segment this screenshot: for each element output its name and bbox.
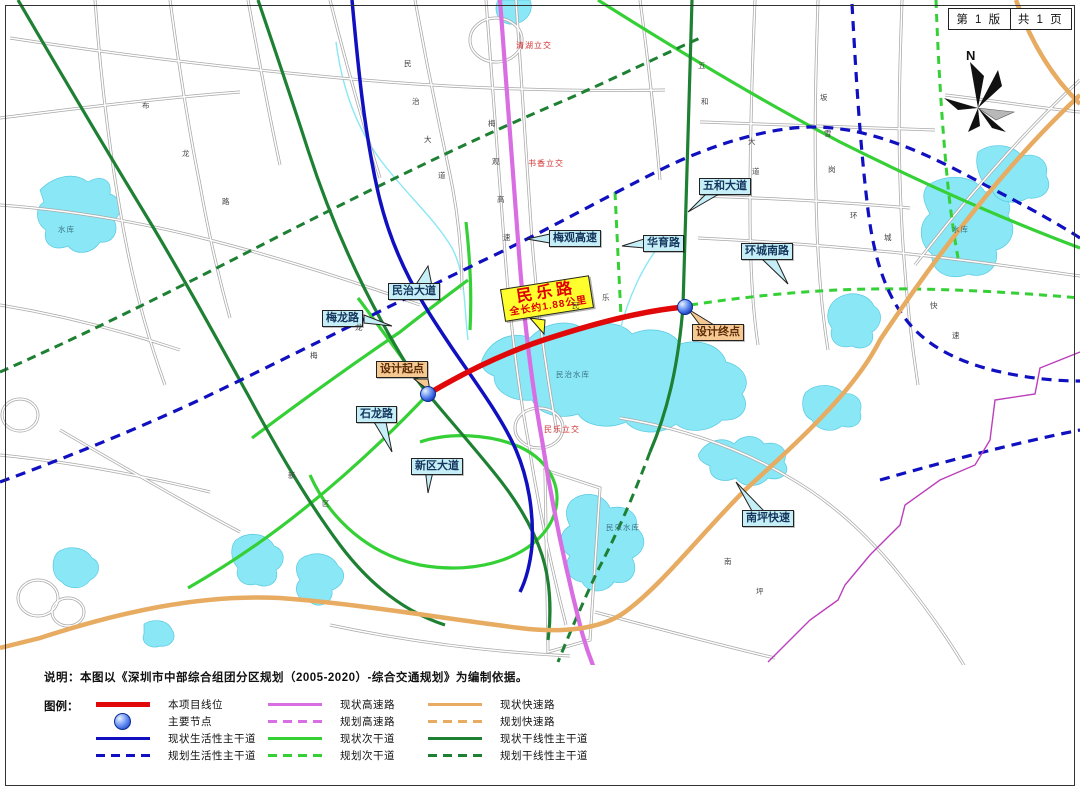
reservoir-label-1: 民治水库	[556, 369, 590, 380]
road-char: 路	[222, 196, 230, 207]
road-char: 环	[850, 210, 858, 221]
legend-label: 本项目线位	[168, 697, 223, 712]
edition-cell: 第 1 版	[949, 9, 1010, 29]
road-label-minzhi-dadao: 民治大道	[388, 283, 440, 300]
road-char: 道	[752, 166, 760, 177]
legend-item-project-line: 本项目线位	[96, 698, 256, 711]
title-block: 第 1 版 共 1 页	[948, 8, 1072, 30]
road-label-shilong-lu: 石龙路	[356, 406, 397, 423]
legend-swatch-node-icon	[96, 713, 158, 730]
reservoir-label-2: 民乐水库	[606, 522, 640, 533]
road-char: 坪	[756, 586, 764, 597]
north-label: N	[966, 48, 975, 63]
legend-label: 规划次干道	[340, 748, 395, 763]
legend-item-secondary-planned: 规划次干道	[268, 749, 395, 762]
road-map-canvas	[0, 0, 1080, 665]
legend-item-fast-existing: 现状快速路	[428, 698, 588, 711]
road-char: 雪	[824, 128, 832, 139]
road-char: 梅	[488, 118, 496, 129]
pages-cell: 共 1 页	[1010, 9, 1072, 29]
legend-swatch-living-existing	[96, 737, 158, 740]
legend-label: 现状高速路	[340, 697, 395, 712]
legend-item-living-planned: 规划生活性主干道	[96, 749, 256, 762]
road-char: 龙	[355, 322, 363, 333]
road-char: 坂	[820, 92, 828, 103]
road-char: 观	[492, 156, 500, 167]
legend-swatch-secondary-existing	[268, 737, 330, 740]
road-label-nanping-kuaisu: 南坪快速	[742, 510, 794, 527]
reservoir-label-4: 水库	[952, 224, 969, 235]
source-note: 说明：本图以《深圳市中部综合组团分区规划（2005-2020）-综合交通规划》为…	[44, 669, 528, 685]
legend-swatch-highway-planned	[268, 720, 330, 723]
road-char: 龙	[182, 148, 190, 159]
legend-item-trunk-existing: 现状干线性主干道	[428, 732, 588, 745]
road-char: 高	[497, 194, 505, 205]
road-label-huancheng-nanlu: 环城南路	[741, 243, 793, 260]
road-char: 民	[572, 300, 580, 311]
road-char: 道	[438, 170, 446, 181]
road-char: 速	[503, 232, 511, 243]
legend-swatch-trunk-existing	[428, 737, 490, 740]
legend-label: 规划快速路	[500, 714, 555, 729]
road-label-meiguan-gaosu: 梅观高速	[549, 230, 601, 247]
legend-label: 规划高速路	[340, 714, 395, 729]
road-char: 城	[884, 232, 892, 243]
road-char: 乐	[602, 292, 610, 303]
legend-column-2: 现状高速路 规划高速路 现状次干道 规划次干道	[268, 698, 395, 762]
road-char: 布	[142, 100, 150, 111]
legend-label: 现状快速路	[500, 697, 555, 712]
legend-label: 规划生活性主干道	[168, 748, 256, 763]
legend-swatch-fast-planned	[428, 720, 490, 723]
node-design-end	[678, 300, 693, 315]
legend-title: 图例：	[44, 698, 79, 714]
road-char: 快	[930, 300, 938, 311]
design-start-label: 设计起点	[376, 361, 428, 378]
road-label-wuhe-dadao: 五和大道	[699, 178, 751, 195]
legend-item-fast-planned: 规划快速路	[428, 715, 588, 728]
legend-swatch-living-planned	[96, 754, 158, 757]
road-char: 岗	[828, 164, 836, 175]
legend-swatch-project-line	[96, 702, 158, 707]
legend-item-highway-planned: 规划高速路	[268, 715, 395, 728]
road-char: 速	[952, 330, 960, 341]
interchange-label-2: 书香立交	[528, 158, 564, 169]
road-char: 新	[288, 470, 296, 481]
road-char: 大	[424, 134, 432, 145]
road-char: 五	[698, 60, 706, 71]
interchange-label-1: 清湖立交	[516, 40, 552, 51]
road-char: 南	[724, 556, 732, 567]
road-label-huayu-lu: 华育路	[643, 235, 684, 252]
road-char: 民	[404, 58, 412, 69]
road-char: 区	[322, 498, 330, 509]
legend-label: 主要节点	[168, 714, 212, 729]
road-label-xinqu-dadao: 新区大道	[411, 458, 463, 475]
road-char: 大	[748, 136, 756, 147]
legend-item-secondary-existing: 现状次干道	[268, 732, 395, 745]
road-char: 治	[412, 96, 420, 107]
legend-swatch-trunk-planned	[428, 754, 490, 757]
legend-item-major-node: 主要节点	[96, 715, 256, 728]
legend-label: 规划干线性主干道	[500, 748, 588, 763]
legend-item-living-existing: 现状生活性主干道	[96, 732, 256, 745]
legend-swatch-highway-existing	[268, 703, 330, 706]
legend-label: 现状干线性主干道	[500, 731, 588, 746]
design-end-label: 设计终点	[692, 324, 744, 341]
road-char: 梅	[310, 350, 318, 361]
legend-column-3: 现状快速路 规划快速路 现状干线性主干道 规划干线性主干道	[428, 698, 588, 762]
legend-column-1: 本项目线位 主要节点 现状生活性主干道 规划生活性主干道	[96, 698, 256, 762]
legend-swatch-fast-existing	[428, 703, 490, 706]
interchange-label-3: 民乐立交	[544, 424, 580, 435]
planning-map-page: 民治大道 梅龙路 梅观高速 华育路 环城南路 五和大道 石龙路 新区大道 南坪快…	[0, 0, 1080, 791]
legend-label: 现状生活性主干道	[168, 731, 256, 746]
legend-swatch-secondary-planned	[268, 754, 330, 757]
node-design-start	[421, 387, 436, 402]
reservoir-label-3: 水库	[58, 224, 75, 235]
road-char: 和	[701, 96, 709, 107]
legend-label: 现状次干道	[340, 731, 395, 746]
legend-item-trunk-planned: 规划干线性主干道	[428, 749, 588, 762]
legend-item-highway-existing: 现状高速路	[268, 698, 395, 711]
